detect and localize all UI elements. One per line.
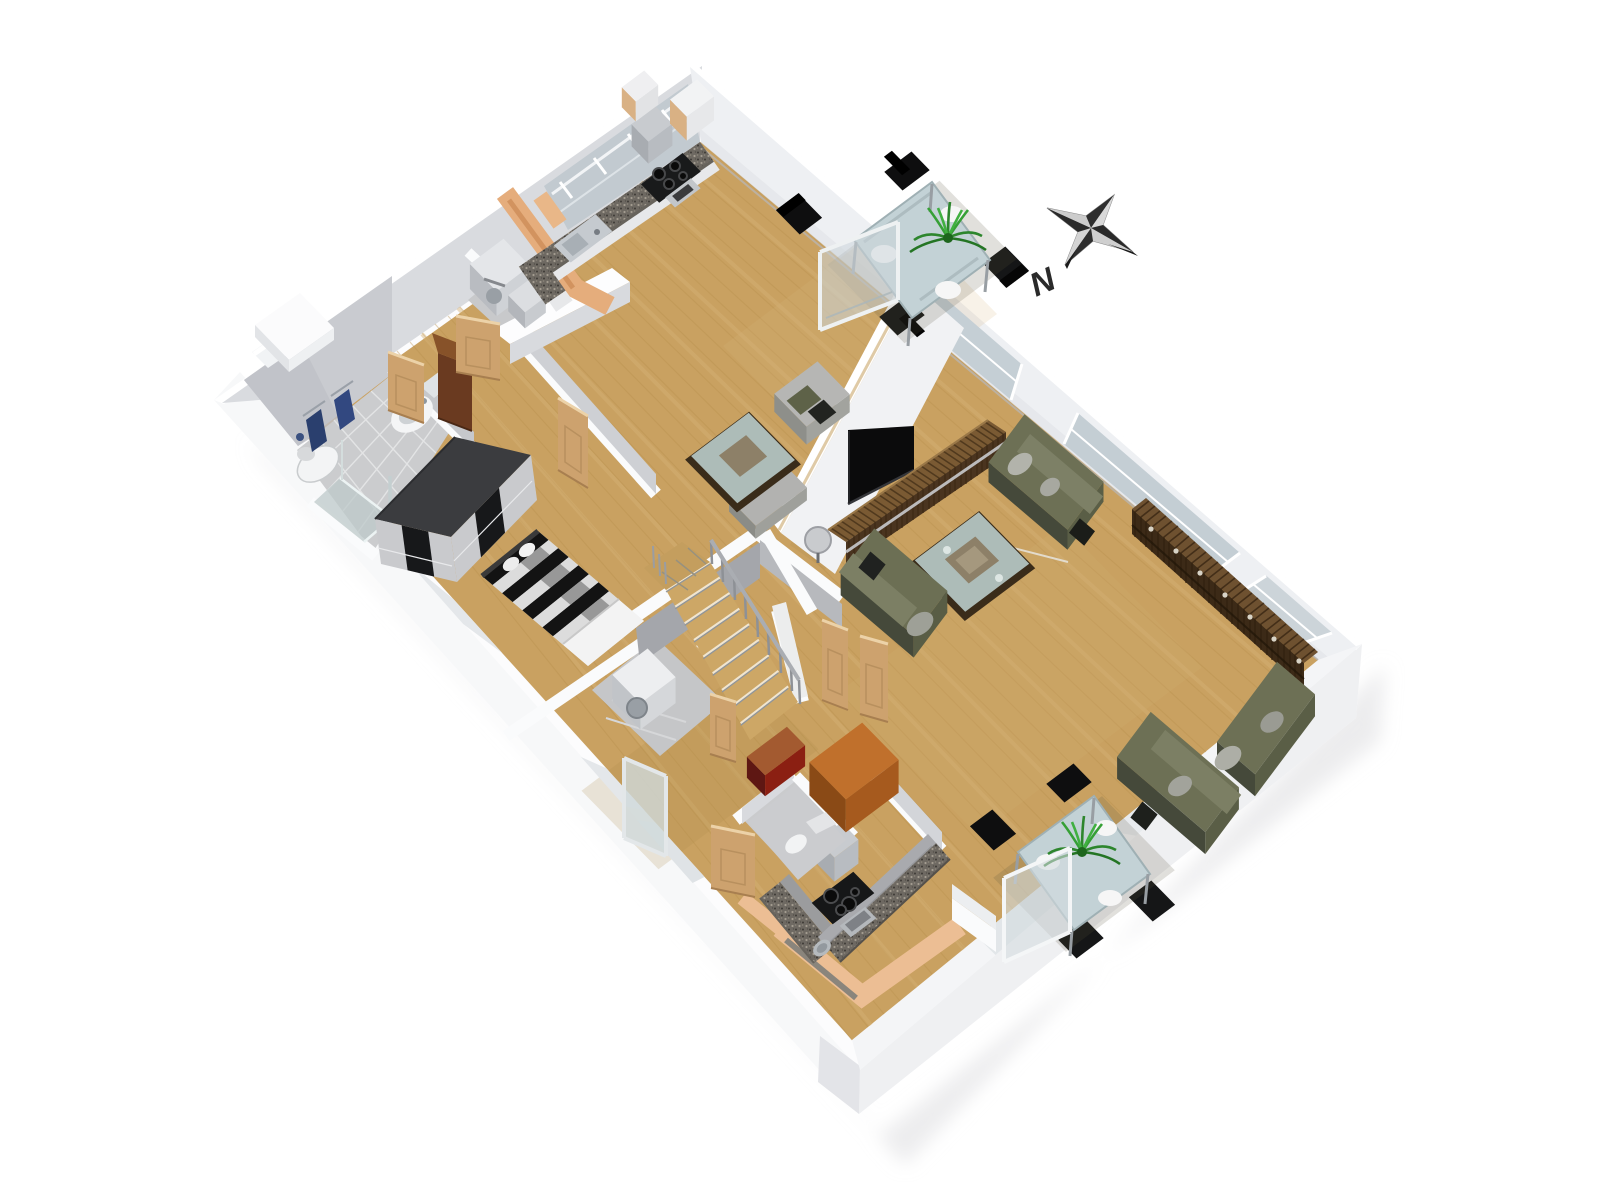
svg-text:N: N	[1024, 259, 1062, 303]
